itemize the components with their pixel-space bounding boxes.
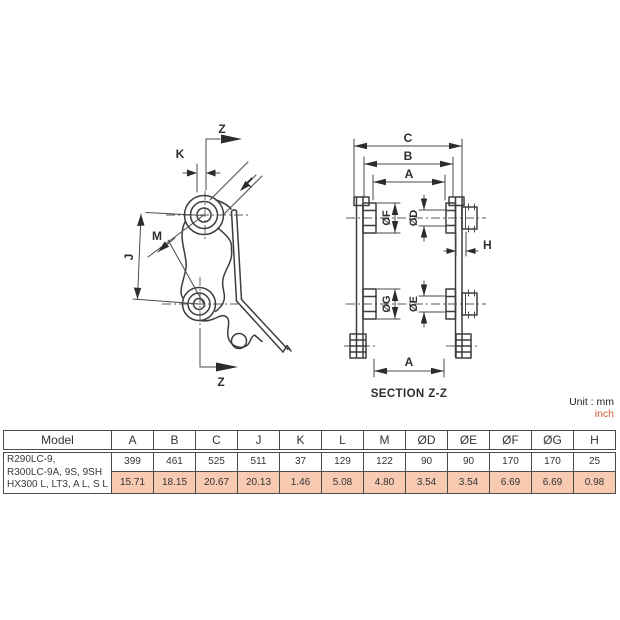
technical-drawing: Z Z bbox=[0, 0, 620, 428]
mm-m: 122 bbox=[364, 453, 406, 472]
dim-A-top: A bbox=[373, 167, 445, 200]
inch-e: 3.54 bbox=[448, 471, 490, 493]
dim-K: K bbox=[176, 147, 220, 192]
col-header-a: A bbox=[112, 431, 154, 450]
dim-M: M bbox=[148, 215, 205, 306]
unit-mm: Unit : mm bbox=[569, 397, 614, 409]
mm-l: 129 bbox=[322, 453, 364, 472]
col-header-f: ØF bbox=[490, 431, 532, 450]
inch-f: 6.69 bbox=[490, 471, 532, 493]
col-header-l: L bbox=[322, 431, 364, 450]
label-d: ØD bbox=[408, 210, 420, 227]
inch-a: 15.71 bbox=[112, 471, 154, 493]
col-header-m: M bbox=[364, 431, 406, 450]
header-row: Model A B C J K L M ØD ØE ØF ØG H bbox=[4, 431, 616, 450]
left-plate bbox=[350, 197, 376, 358]
model-line-3: HX300 L, LT3, A L, S L bbox=[7, 479, 111, 492]
mm-row: R290LC-9, R300LC-9A, 9S, 9SH HX300 L, LT… bbox=[4, 453, 616, 472]
bracket-outline bbox=[181, 196, 291, 353]
label-e: ØE bbox=[408, 296, 420, 312]
mm-d: 90 bbox=[406, 453, 448, 472]
label-a-top: A bbox=[405, 167, 414, 181]
col-header-e: ØE bbox=[448, 431, 490, 450]
dim-L: L bbox=[210, 162, 262, 214]
inch-m: 4.80 bbox=[364, 471, 406, 493]
dim-J: J bbox=[122, 213, 204, 305]
unit-inch: inch bbox=[569, 409, 614, 421]
left-view: Z Z bbox=[122, 122, 291, 389]
inch-g: 6.69 bbox=[532, 471, 574, 493]
dimension-table-body: R290LC-9, R300LC-9A, 9S, 9SH HX300 L, LT… bbox=[3, 452, 616, 494]
label-a-bottom: A bbox=[405, 355, 414, 369]
label-g: ØG bbox=[381, 295, 393, 312]
mm-a: 399 bbox=[112, 453, 154, 472]
model-cell: R290LC-9, R300LC-9A, 9S, 9SH HX300 L, LT… bbox=[4, 453, 112, 494]
dimension-table: Model A B C J K L M ØD ØE ØF ØG H bbox=[3, 430, 616, 494]
model-line-1: R290LC-9, bbox=[7, 454, 111, 467]
label-b: B bbox=[404, 149, 413, 163]
col-header-d: ØD bbox=[406, 431, 448, 450]
inch-c: 20.67 bbox=[196, 471, 238, 493]
col-header-b: B bbox=[154, 431, 196, 450]
unit-label: Unit : mm inch bbox=[569, 397, 614, 420]
inch-k: 1.46 bbox=[280, 471, 322, 493]
label-c: C bbox=[404, 131, 413, 145]
label-m: M bbox=[152, 229, 162, 243]
inch-l: 5.08 bbox=[322, 471, 364, 493]
label-j: J bbox=[122, 254, 136, 261]
model-line-2: R300LC-9A, 9S, 9SH bbox=[7, 467, 111, 480]
dimension-table-header: Model A B C J K L M ØD ØE ØF ØG H bbox=[3, 430, 616, 450]
inch-d: 3.54 bbox=[406, 471, 448, 493]
dim-G: ØG bbox=[377, 289, 400, 319]
label-k: K bbox=[176, 147, 185, 161]
section-arrow-top: Z bbox=[206, 122, 242, 190]
col-header-k: K bbox=[280, 431, 322, 450]
label-z-top: Z bbox=[218, 122, 225, 136]
label-f: ØF bbox=[381, 210, 393, 226]
drawing-sheet: Z Z bbox=[0, 0, 620, 620]
mm-k: 37 bbox=[280, 453, 322, 472]
mm-e: 90 bbox=[448, 453, 490, 472]
mm-b: 461 bbox=[154, 453, 196, 472]
label-h: H bbox=[483, 238, 492, 252]
right-view: C B A bbox=[344, 131, 492, 400]
col-header-h: H bbox=[574, 431, 616, 450]
mm-c: 525 bbox=[196, 453, 238, 472]
col-header-c: C bbox=[196, 431, 238, 450]
inch-j: 20.13 bbox=[238, 471, 280, 493]
label-z-bottom: Z bbox=[217, 375, 224, 389]
inch-h: 0.98 bbox=[574, 471, 616, 493]
dim-H: H bbox=[444, 232, 492, 256]
mm-f: 170 bbox=[490, 453, 532, 472]
dim-F: ØF bbox=[377, 203, 400, 233]
inch-b: 18.15 bbox=[154, 471, 196, 493]
mm-g: 170 bbox=[532, 453, 574, 472]
section-title: SECTION Z-Z bbox=[371, 388, 448, 400]
col-header-j: J bbox=[238, 431, 280, 450]
right-plate bbox=[446, 197, 477, 358]
col-header-g: ØG bbox=[532, 431, 574, 450]
mm-h: 25 bbox=[574, 453, 616, 472]
col-header-model: Model bbox=[4, 431, 112, 450]
dim-A-bottom: A bbox=[374, 355, 444, 377]
mm-j: 511 bbox=[238, 453, 280, 472]
